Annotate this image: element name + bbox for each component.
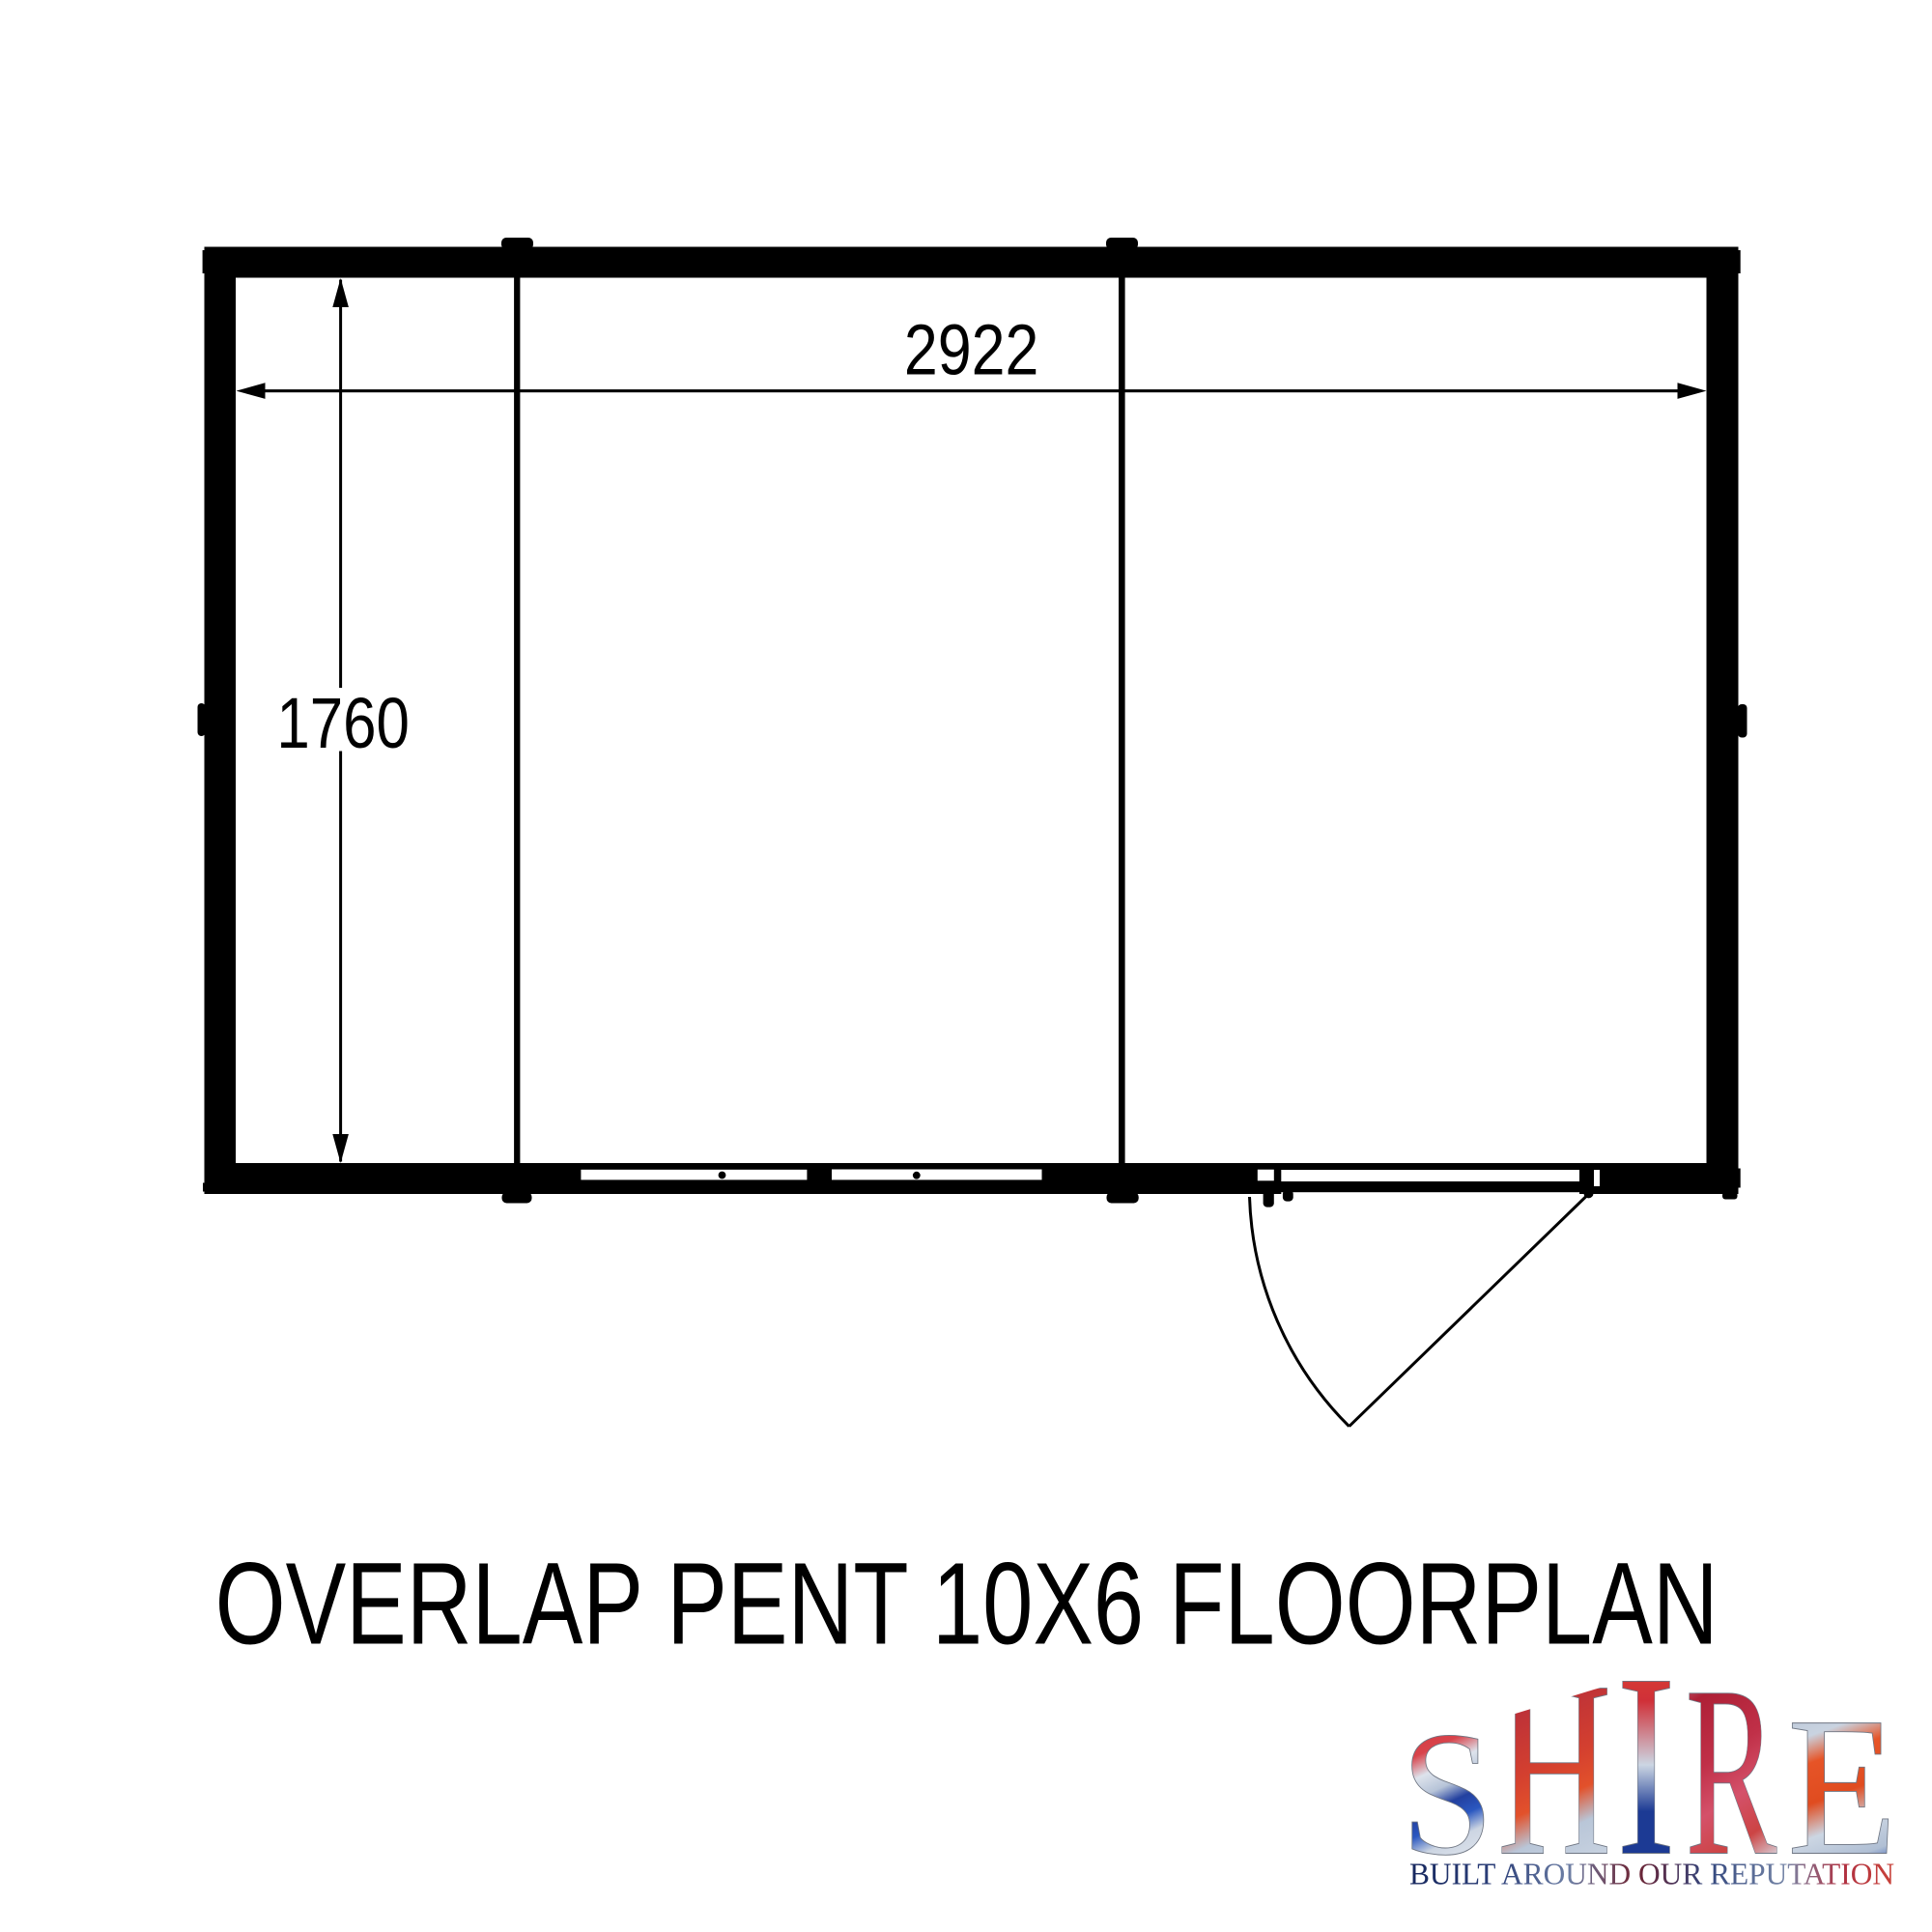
svg-text:1760: 1760 bbox=[276, 683, 410, 763]
svg-text:BUILT AROUND OUR REPUTATION: BUILT AROUND OUR REPUTATION bbox=[1409, 1857, 1894, 1890]
svg-text:2922: 2922 bbox=[904, 310, 1039, 390]
svg-text:OVERLAP PENT 10X6 FLOORPLAN: OVERLAP PENT 10X6 FLOORPLAN bbox=[215, 1539, 1719, 1669]
